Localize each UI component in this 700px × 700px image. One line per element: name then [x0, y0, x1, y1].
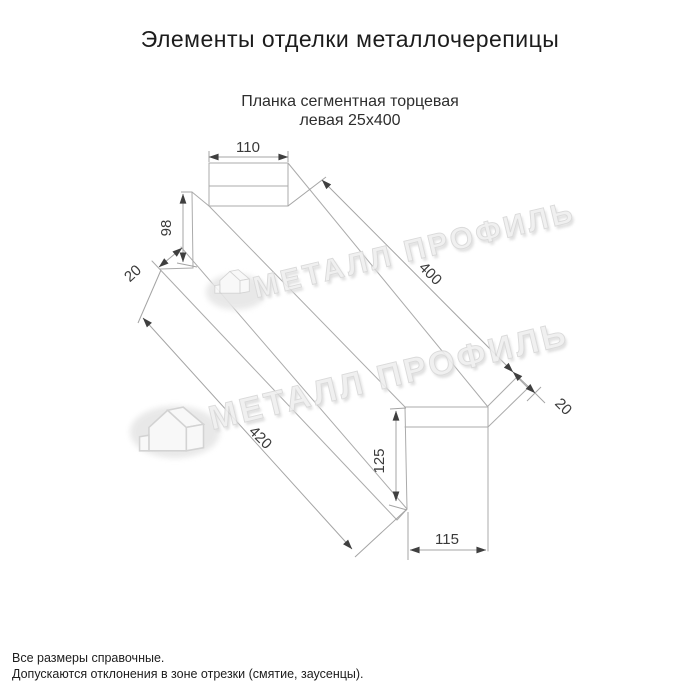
- dim-top-width-label: 110: [236, 139, 260, 156]
- footer-note-2: Допускаются отклонения в зоне отрезки (с…: [12, 666, 364, 682]
- tab-upper-edge: [488, 377, 517, 406]
- footer-note-1: Все размеры справочные.: [12, 650, 364, 666]
- dim-line-20-left: [159, 248, 182, 267]
- technical-drawing: 110 98 20 400 20 420 125 115 МЕТАЛЛ ПРОФ…: [0, 0, 700, 700]
- watermark-text: МЕТАЛЛ ПРОФИЛЬ: [250, 196, 579, 305]
- dim-right-height-label: 125: [371, 448, 388, 473]
- metal-profil-logo-icon: [215, 270, 249, 294]
- footer-notes: Все размеры справочные. Допускаются откл…: [12, 650, 364, 682]
- dim-right-hem-label: 20: [551, 395, 575, 419]
- top-end-face: [209, 163, 288, 206]
- page: Элементы отделки металлочерепицы Планка …: [0, 0, 700, 700]
- watermark-upper: МЕТАЛЛ ПРОФИЛЬ МЕТАЛЛ ПРОФИЛЬ: [206, 196, 581, 310]
- top-end-hem-edge: [160, 268, 193, 269]
- top-end-web-edge: [192, 192, 193, 268]
- tab-lower-edge: [488, 388, 528, 427]
- dim-line-20-right: [513, 372, 535, 393]
- tab-tip-edge: [517, 377, 528, 388]
- bottom-end-left-edge: [405, 407, 407, 509]
- dim-bottom-width-label: 115: [435, 531, 459, 548]
- dim-left-height-label: 98: [158, 220, 175, 237]
- dim-left-hem-label: 20: [121, 262, 145, 286]
